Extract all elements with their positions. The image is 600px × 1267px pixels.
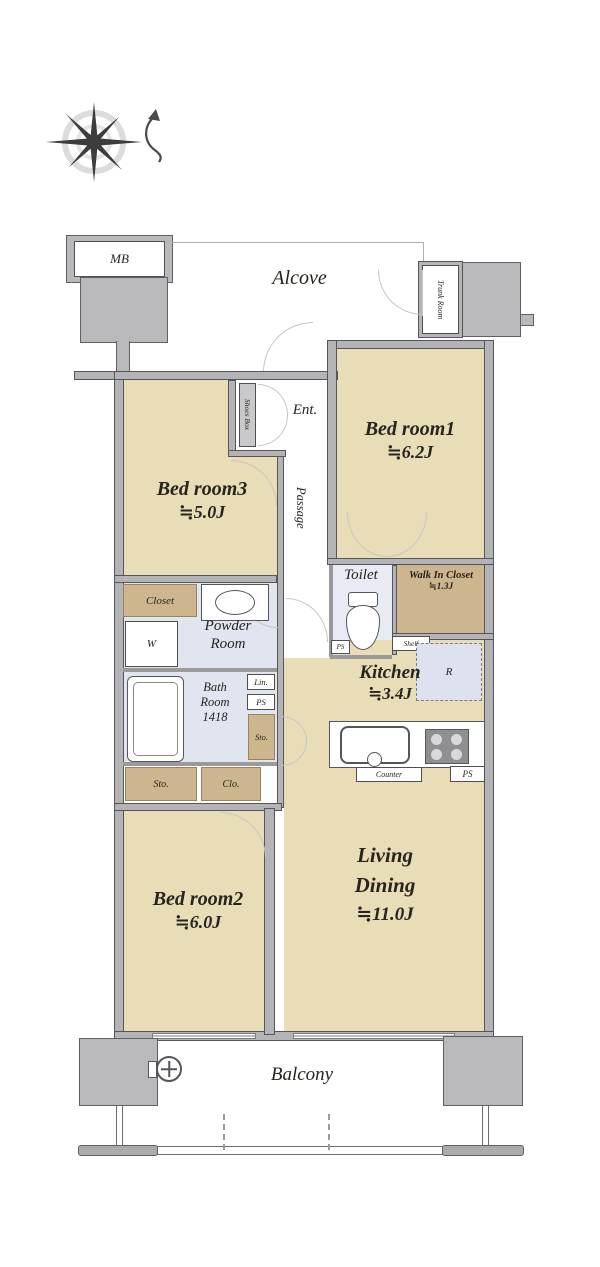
bathtub-fixture <box>127 676 184 762</box>
sto-box-hall: Sto. <box>248 714 275 760</box>
passage-label: Passage <box>293 460 308 555</box>
counter-label-box: Counter <box>356 767 422 782</box>
wall-bedroom1-bottom <box>327 558 494 565</box>
walk-in-closet-area: ≒1.3J <box>398 582 484 593</box>
kitchen-label: Kitchen ≒3.4J <box>331 662 449 704</box>
wall-right <box>484 340 494 1040</box>
wall-ent-divider <box>228 380 236 456</box>
balcony-column-left <box>79 1038 158 1106</box>
pillar-tab <box>520 314 534 326</box>
balcony-side-left <box>116 1106 123 1148</box>
faucet-knob <box>367 752 382 767</box>
living-dining-label: Living Dining ≒11.0J <box>320 840 450 928</box>
shoes-box: Shoes Box <box>239 383 256 447</box>
door-arc-entry <box>263 322 313 372</box>
balcony-divider-dashed-2 <box>328 1114 330 1150</box>
sto-box: Sto. <box>125 767 197 801</box>
lin-box: Lin. <box>247 674 275 690</box>
wall-powder-bath <box>123 668 277 672</box>
bedroom1-label: Bed room1 ≒6.2J <box>337 418 483 463</box>
wall-bedroom2-top <box>114 803 282 811</box>
pillar-top-right <box>458 262 521 337</box>
ps-box-toilet: PS <box>331 640 350 654</box>
window-living <box>293 1033 455 1039</box>
wall-left <box>114 371 124 1040</box>
meter-box: MB <box>74 241 165 277</box>
balcony-label: Balcony <box>242 1064 362 1086</box>
pillar-top-left <box>80 277 168 343</box>
bedroom2-area: ≒6.0J <box>124 912 272 933</box>
door-leaf-alcove <box>422 270 423 316</box>
balcony-railcap-left <box>78 1145 158 1156</box>
ps-box-kitchen: PS <box>450 766 485 782</box>
bedroom1-area: ≒6.2J <box>337 442 483 463</box>
walk-in-closet-label: Walk In Closet ≒1.3J <box>398 570 484 594</box>
bedroom2-label: Bed room2 ≒6.0J <box>124 888 272 933</box>
wall-ent-step <box>228 450 286 457</box>
floor-bedroom3 <box>123 380 229 457</box>
closet-box: Closet <box>123 584 197 617</box>
door-arc-alcove <box>378 270 423 315</box>
wall-toilet-bottom <box>330 655 392 659</box>
toilet-label: Toilet <box>331 567 391 585</box>
trunk-room-box: Trunk Room <box>422 265 459 334</box>
living-dining-area: ≒11.0J <box>320 901 450 929</box>
entrance-label: Ent. <box>281 402 329 420</box>
washer-box: W <box>125 621 178 667</box>
balcony-side-right <box>482 1106 489 1148</box>
kitchen-area: ≒3.4J <box>331 684 449 704</box>
wall-bath-bottom <box>123 762 277 766</box>
bath-room-label: Bath Room 1418 <box>184 680 246 724</box>
wall-passage-right <box>327 340 337 565</box>
vanity-sink <box>215 590 255 615</box>
bathtub-inner <box>133 682 178 756</box>
powder-room-label: Powder Room <box>176 618 280 653</box>
window-bedroom2 <box>152 1033 256 1039</box>
clo-box: Clo. <box>201 767 261 801</box>
wall-bedroom3-bottom <box>114 575 277 583</box>
trunk-room-label: Trunk Room <box>436 280 445 319</box>
balcony-column-right <box>443 1036 523 1106</box>
wall-top-left <box>114 371 338 380</box>
ps-box-bath: PS <box>247 694 275 710</box>
pillar-stem <box>116 341 130 373</box>
balcony-railcap-right <box>442 1145 524 1156</box>
meter-box-label: MB <box>110 251 129 267</box>
stove <box>425 729 469 764</box>
shoes-box-label: Shoes Box <box>243 399 252 430</box>
compass-rose-icon <box>42 92 164 192</box>
alcove-outline-top <box>172 242 424 243</box>
faucet-icon <box>156 1056 182 1082</box>
wall-top-bedroom1 <box>327 340 494 349</box>
north-arrow-icon <box>146 109 161 162</box>
balcony-divider-dashed-1 <box>223 1114 225 1150</box>
alcove-label: Alcove <box>222 267 377 291</box>
floor-plan: MB Alcove Trunk Room <box>0 0 600 1267</box>
faucet-bracket <box>148 1061 157 1078</box>
